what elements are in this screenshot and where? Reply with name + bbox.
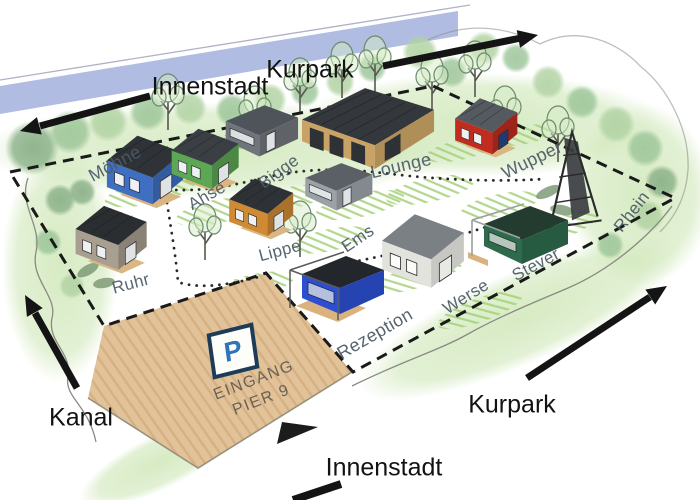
house-werse <box>378 206 470 294</box>
arrow-innenstadt-bottom <box>293 484 341 500</box>
label-kurpark-top: Kurpark <box>266 56 354 85</box>
label-innenstadt-top: Innenstadt <box>152 73 269 102</box>
label-kurpark-bottom: Kurpark <box>468 391 556 420</box>
house-ruhr <box>72 198 152 276</box>
entrance-triangle <box>277 422 318 444</box>
house-rezeption <box>288 248 388 334</box>
site-map: Möhne Ruhr Ahse Lippe Bigge Lounge Wuppe… <box>0 0 700 500</box>
label-innenstadt-bottom: Innenstadt <box>326 454 443 483</box>
parking-sign-letter: P <box>222 333 244 368</box>
house-ems <box>302 158 374 214</box>
label-kanal: Kanal <box>49 404 113 433</box>
house-wupper <box>452 92 522 159</box>
